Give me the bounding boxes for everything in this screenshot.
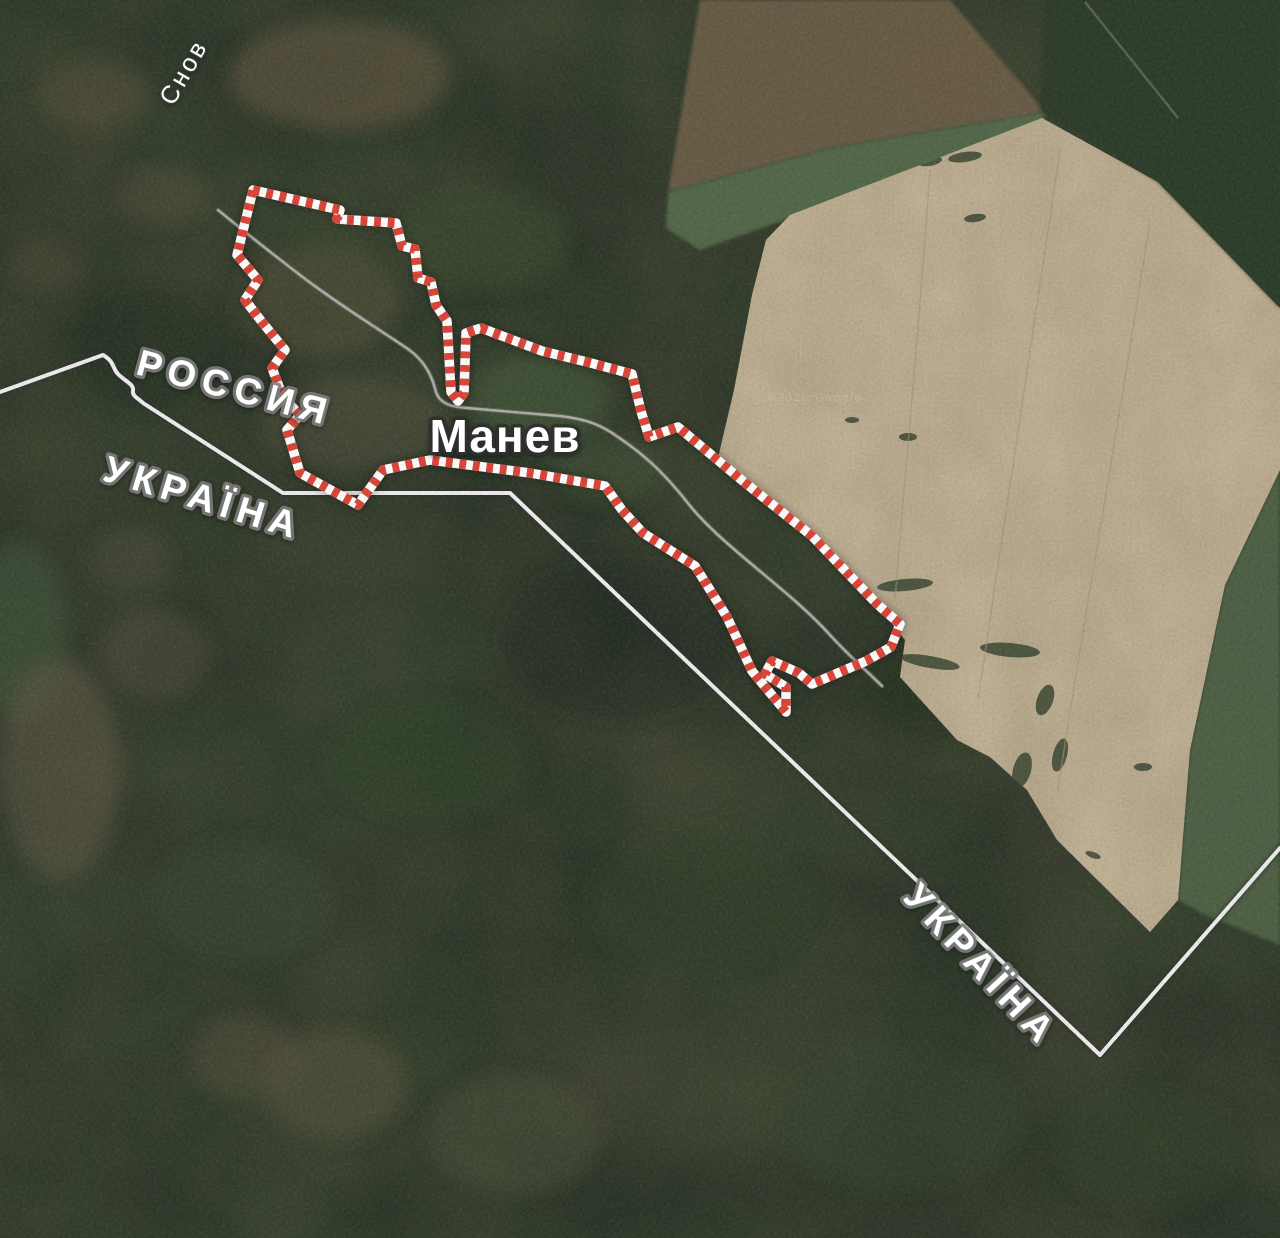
imagery-watermark: ©2025 Google xyxy=(767,392,862,404)
grain-dark xyxy=(0,0,1280,1238)
satellite-map[interactable]: Снов РОССИЯ УКРАЇНА УКРАЇНА Манев ©2025 … xyxy=(0,0,1280,1238)
settlement-label: Манев xyxy=(429,410,580,462)
map-canvas: Снов РОССИЯ УКРАЇНА УКРАЇНА Манев ©2025 … xyxy=(0,0,1280,1238)
